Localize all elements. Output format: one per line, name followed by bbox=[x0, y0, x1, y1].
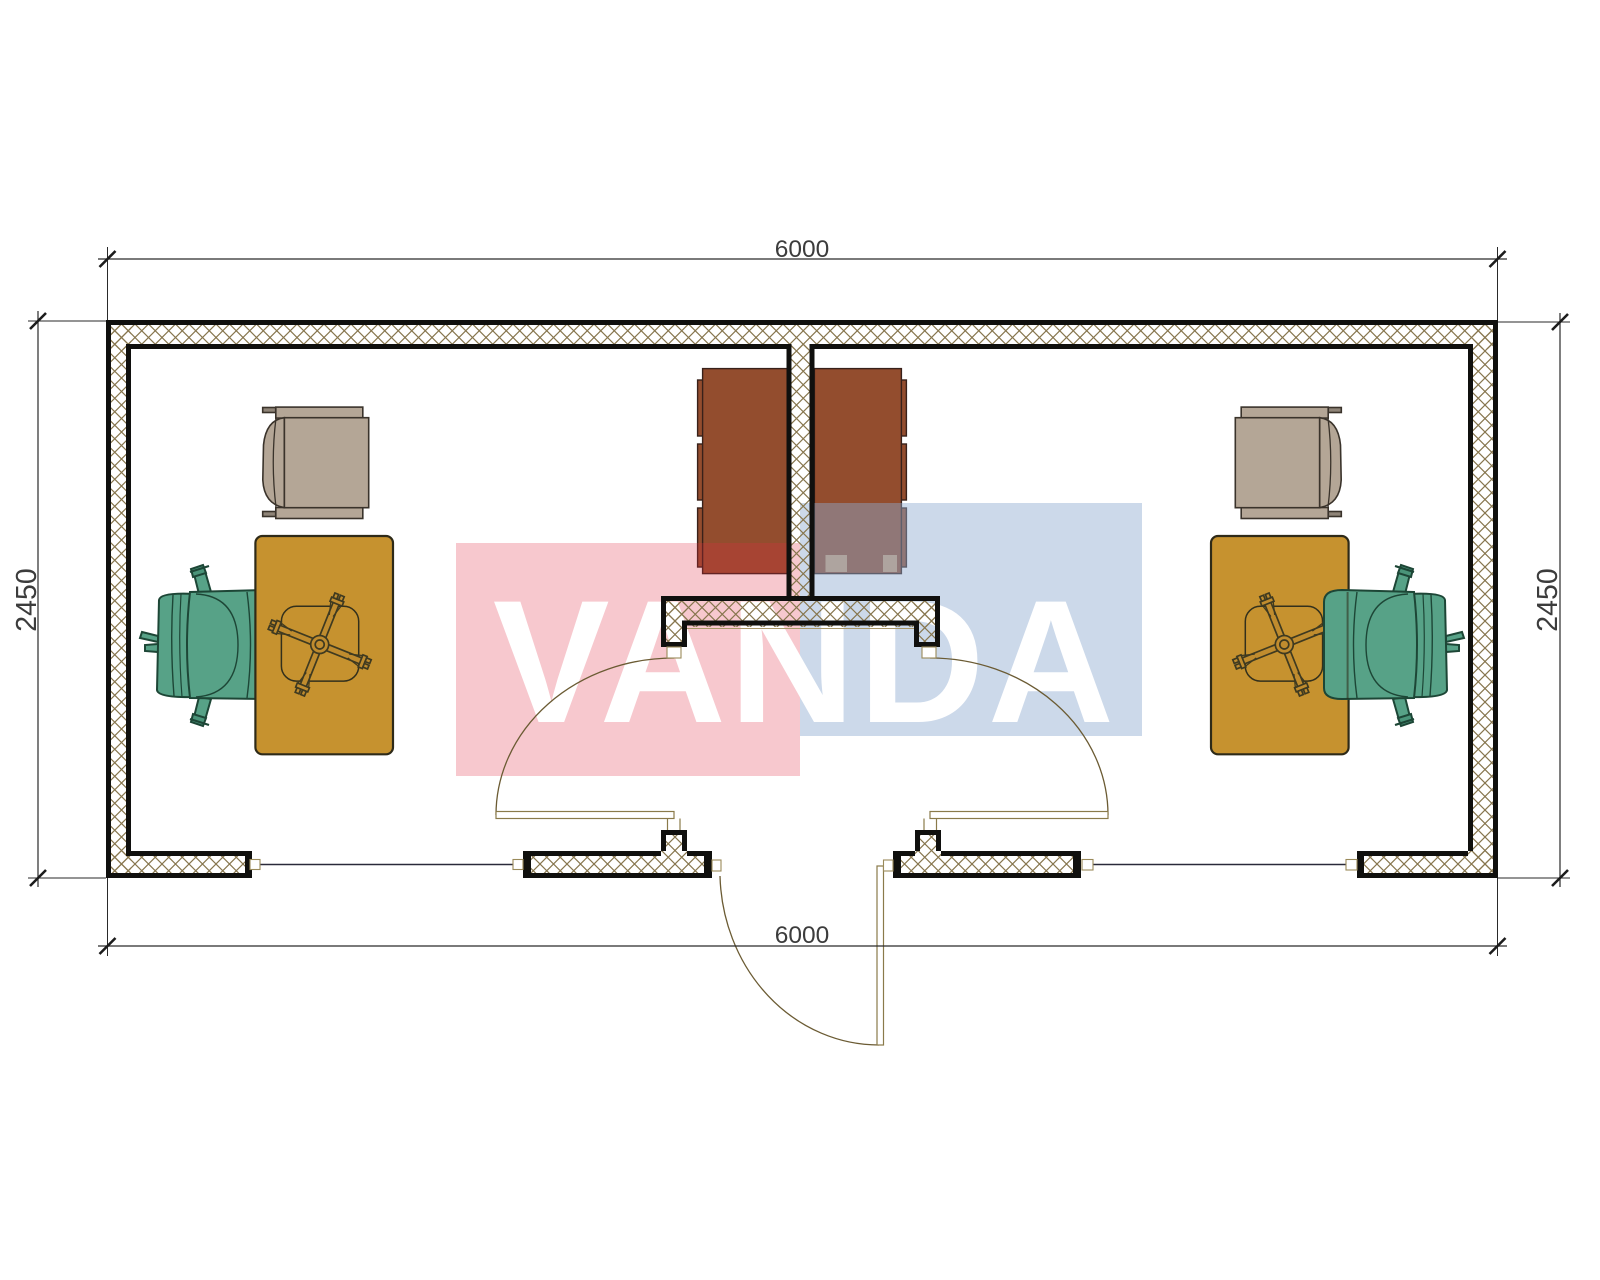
svg-text:6000: 6000 bbox=[775, 922, 830, 949]
svg-text:6000: 6000 bbox=[775, 236, 830, 263]
svg-text:2450: 2450 bbox=[1532, 568, 1564, 631]
svg-text:2450: 2450 bbox=[11, 568, 43, 631]
